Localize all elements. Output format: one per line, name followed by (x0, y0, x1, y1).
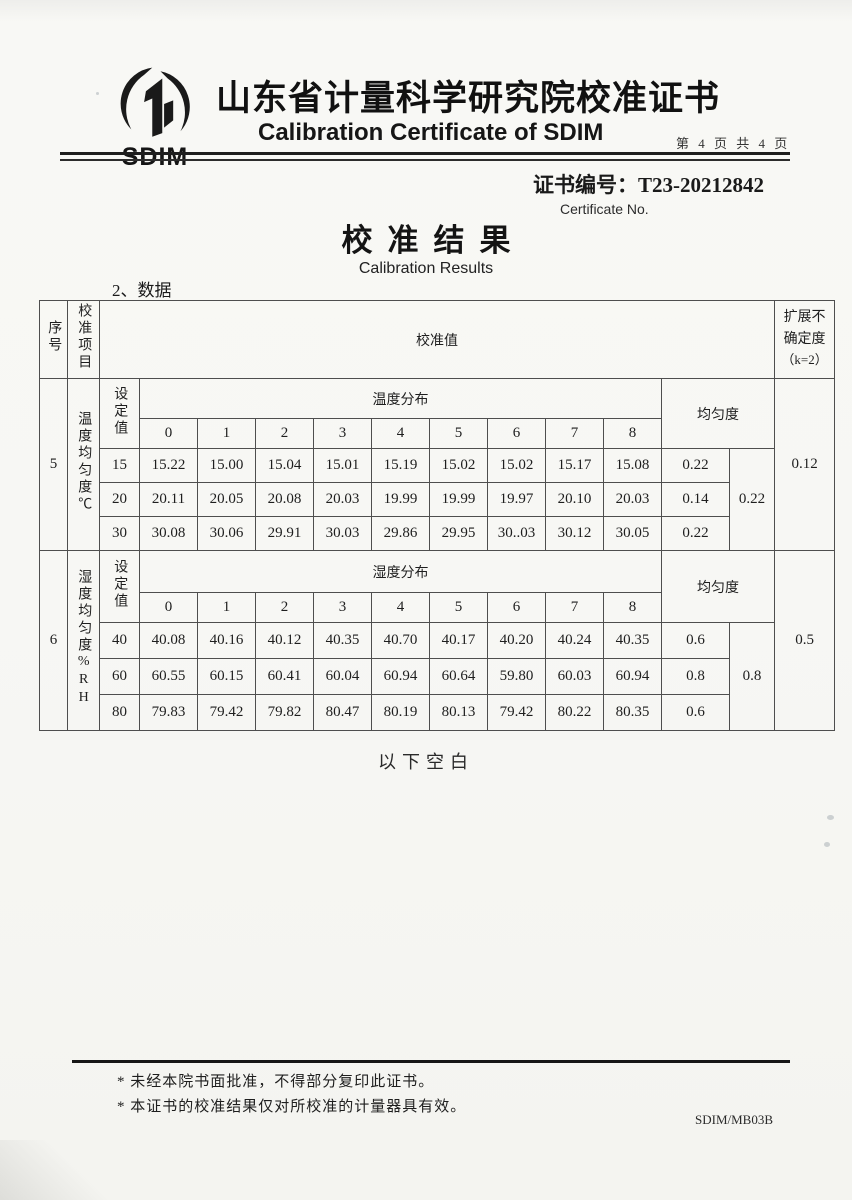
item-header: 校准项目 (68, 301, 100, 379)
hum-value-cell: 60.94 (604, 659, 662, 695)
temp-point-5: 5 (430, 419, 488, 449)
temp-uniformity-cell: 0.22 (662, 517, 730, 551)
temp-row-15: 15 15.22 15.00 15.04 15.01 15.19 15.02 1… (40, 449, 835, 483)
hum-value-cell: 80.35 (604, 695, 662, 731)
temp-value-cell: 20.05 (198, 483, 256, 517)
temp-value-cell: 19.99 (430, 483, 488, 517)
hum-value-cell: 60.55 (140, 659, 198, 695)
temp-point-2: 2 (256, 419, 314, 449)
data-section-heading: 2、数据 (112, 276, 172, 301)
hum-point-3: 3 (314, 593, 372, 623)
hum-value-cell: 40.20 (488, 623, 546, 659)
hum-value-cell: 60.64 (430, 659, 488, 695)
hum-value-cell: 80.22 (546, 695, 604, 731)
temp-uniformity-header: 均匀度 (662, 379, 775, 449)
temp-point-3: 3 (314, 419, 372, 449)
results-title-cn: 校准结果 (0, 215, 852, 260)
temp-value-cell: 15.02 (488, 449, 546, 483)
hum-uniformity-cell: 0.6 (662, 695, 730, 731)
hum-value-cell: 80.13 (430, 695, 488, 731)
hum-setpoint-cell: 40 (100, 623, 140, 659)
seq-header-label: 序号 (46, 320, 61, 354)
hum-dist-header-row: 6 湿度均匀度%RH 设定值 湿度分布 均匀度 0.5 (40, 551, 835, 593)
hum-value-cell: 40.08 (140, 623, 198, 659)
footer-note-2: * 本证书的校准结果仅对所校准的计量器具有效。 (117, 1095, 466, 1116)
uncertainty-header: 扩展不确定度（k=2） (775, 301, 835, 379)
temp-value-cell: 15.08 (604, 449, 662, 483)
temp-uncertainty-cell: 0.12 (775, 379, 835, 551)
temp-value-cell: 15.19 (372, 449, 430, 483)
temp-value-cell: 30.12 (546, 517, 604, 551)
hum-point-5: 5 (430, 593, 488, 623)
temp-point-8: 8 (604, 419, 662, 449)
temp-item-cell: 温度均匀度℃ (68, 379, 100, 551)
temp-value-cell: 30.08 (140, 517, 198, 551)
hum-value-cell: 79.42 (488, 695, 546, 731)
hum-point-0: 0 (140, 593, 198, 623)
blank-below-note: 以下空白 (0, 748, 852, 774)
hum-point-7: 7 (546, 593, 604, 623)
temp-value-cell: 30.06 (198, 517, 256, 551)
hum-point-1: 1 (198, 593, 256, 623)
temp-point-1: 1 (198, 419, 256, 449)
hum-value-cell: 60.03 (546, 659, 604, 695)
hum-value-cell: 60.41 (256, 659, 314, 695)
footer-note-1: * 未经本院书面批准，不得部分复印此证书。 (117, 1070, 434, 1091)
hum-overall-uniformity-cell: 0.8 (730, 623, 775, 731)
temp-seq-cell: 5 (40, 379, 68, 551)
hum-value-cell: 60.04 (314, 659, 372, 695)
sdim-logo-icon (109, 64, 201, 144)
hum-value-cell: 40.17 (430, 623, 488, 659)
item-header-label: 校准项目 (76, 303, 91, 371)
scan-speck (827, 815, 834, 820)
temp-point-6: 6 (488, 419, 546, 449)
temp-value-cell: 15.22 (140, 449, 198, 483)
header-divider (60, 152, 790, 161)
hum-row-60: 60 60.55 60.15 60.41 60.04 60.94 60.64 5… (40, 659, 835, 695)
temp-value-cell: 19.99 (372, 483, 430, 517)
footer-divider (72, 1060, 790, 1063)
hum-row-80: 80 79.83 79.42 79.82 80.47 80.19 80.13 7… (40, 695, 835, 731)
temp-setpoint-cell: 20 (100, 483, 140, 517)
hum-setpoint-label: 设定值 (112, 559, 127, 610)
temp-row-30: 30 30.08 30.06 29.91 30.03 29.86 29.95 3… (40, 517, 835, 551)
temp-dist-header-row: 5 温度均匀度℃ 设定值 温度分布 均匀度 0.12 (40, 379, 835, 419)
temp-row-20: 20 20.11 20.05 20.08 20.03 19.99 19.99 1… (40, 483, 835, 517)
hum-row-40: 40 40.08 40.16 40.12 40.35 40.70 40.17 4… (40, 623, 835, 659)
temp-value-cell: 30.05 (604, 517, 662, 551)
hum-seq-cell: 6 (40, 551, 68, 731)
seq-header: 序号 (40, 301, 68, 379)
table-header-row: 序号 校准项目 校准值 扩展不确定度（k=2） (40, 301, 835, 379)
certificate-page: SDIM 山东省计量科学研究院校准证书 Calibration Certific… (0, 0, 852, 1200)
hum-value-cell: 80.19 (372, 695, 430, 731)
hum-point-4: 4 (372, 593, 430, 623)
hum-uniformity-cell: 0.6 (662, 623, 730, 659)
temp-value-cell: 20.10 (546, 483, 604, 517)
hum-value-cell: 59.80 (488, 659, 546, 695)
hum-value-cell: 40.35 (314, 623, 372, 659)
hum-value-cell: 60.15 (198, 659, 256, 695)
temp-value-cell: 29.86 (372, 517, 430, 551)
hum-value-cell: 40.70 (372, 623, 430, 659)
hum-uniformity-cell: 0.8 (662, 659, 730, 695)
page-number: 第 4 页 共 4 页 (676, 133, 790, 152)
hum-setpoint-header: 设定值 (100, 551, 140, 623)
temp-value-cell: 29.95 (430, 517, 488, 551)
certificate-title-en: Calibration Certificate of SDIM (258, 119, 603, 147)
temp-setpoint-cell: 15 (100, 449, 140, 483)
scan-speck (824, 842, 830, 847)
hum-distribution-header: 湿度分布 (140, 551, 662, 593)
temp-setpoint-cell: 30 (100, 517, 140, 551)
temp-overall-uniformity-cell: 0.22 (730, 449, 775, 551)
temp-value-cell: 29.91 (256, 517, 314, 551)
temp-value-cell: 20.11 (140, 483, 198, 517)
temp-value-cell: 19.97 (488, 483, 546, 517)
hum-value-cell: 60.94 (372, 659, 430, 695)
temp-value-cell: 15.04 (256, 449, 314, 483)
temp-value-cell: 20.03 (604, 483, 662, 517)
temp-value-cell: 15.02 (430, 449, 488, 483)
temp-distribution-header: 温度分布 (140, 379, 662, 419)
hum-value-cell: 40.12 (256, 623, 314, 659)
temp-value-cell: 30.03 (314, 517, 372, 551)
uncertainty-header-label: 扩展不确定度 (784, 310, 826, 347)
hum-setpoint-cell: 80 (100, 695, 140, 731)
hum-value-cell: 40.16 (198, 623, 256, 659)
form-code: SDIM/MB03B (695, 1112, 773, 1128)
hum-value-cell: 79.42 (198, 695, 256, 731)
hum-uncertainty-cell: 0.5 (775, 551, 835, 731)
temp-uniformity-cell: 0.22 (662, 449, 730, 483)
hum-value-cell: 79.82 (256, 695, 314, 731)
hum-point-8: 8 (604, 593, 662, 623)
hum-value-cell: 40.24 (546, 623, 604, 659)
temp-setpoint-label: 设定值 (112, 386, 127, 437)
temp-value-cell: 15.17 (546, 449, 604, 483)
certificate-number: 证书编号：T23-20212842 (533, 169, 764, 199)
calibration-results-table-wrap: 序号 校准项目 校准值 扩展不确定度（k=2） 5 温度均匀度℃ 设定值 温度分… (39, 300, 835, 731)
hum-item-label: 湿度均匀度%RH (76, 569, 91, 708)
temp-item-label: 温度均匀度℃ (76, 411, 91, 513)
temp-value-cell: 20.03 (314, 483, 372, 517)
hum-value-cell: 79.83 (140, 695, 198, 731)
certificate-title-cn: 山东省计量科学研究院校准证书 (216, 70, 716, 121)
scan-speck (96, 92, 99, 95)
temp-point-0: 0 (140, 419, 198, 449)
hum-uniformity-header: 均匀度 (662, 551, 775, 623)
temp-value-cell: 30..03 (488, 517, 546, 551)
calibration-results-table: 序号 校准项目 校准值 扩展不确定度（k=2） 5 温度均匀度℃ 设定值 温度分… (39, 300, 835, 731)
temp-point-7: 7 (546, 419, 604, 449)
hum-item-cell: 湿度均匀度%RH (68, 551, 100, 731)
calibration-value-header: 校准值 (100, 301, 775, 379)
temp-setpoint-header: 设定值 (100, 379, 140, 449)
temp-value-cell: 15.00 (198, 449, 256, 483)
temp-value-cell: 15.01 (314, 449, 372, 483)
hum-value-cell: 80.47 (314, 695, 372, 731)
hum-point-2: 2 (256, 593, 314, 623)
temp-point-4: 4 (372, 419, 430, 449)
scan-corner-shadow (0, 1140, 140, 1200)
hum-setpoint-cell: 60 (100, 659, 140, 695)
hum-point-6: 6 (488, 593, 546, 623)
temp-uniformity-cell: 0.14 (662, 483, 730, 517)
hum-value-cell: 40.35 (604, 623, 662, 659)
temp-value-cell: 20.08 (256, 483, 314, 517)
uncertainty-k-label: （k=2） (781, 352, 827, 367)
